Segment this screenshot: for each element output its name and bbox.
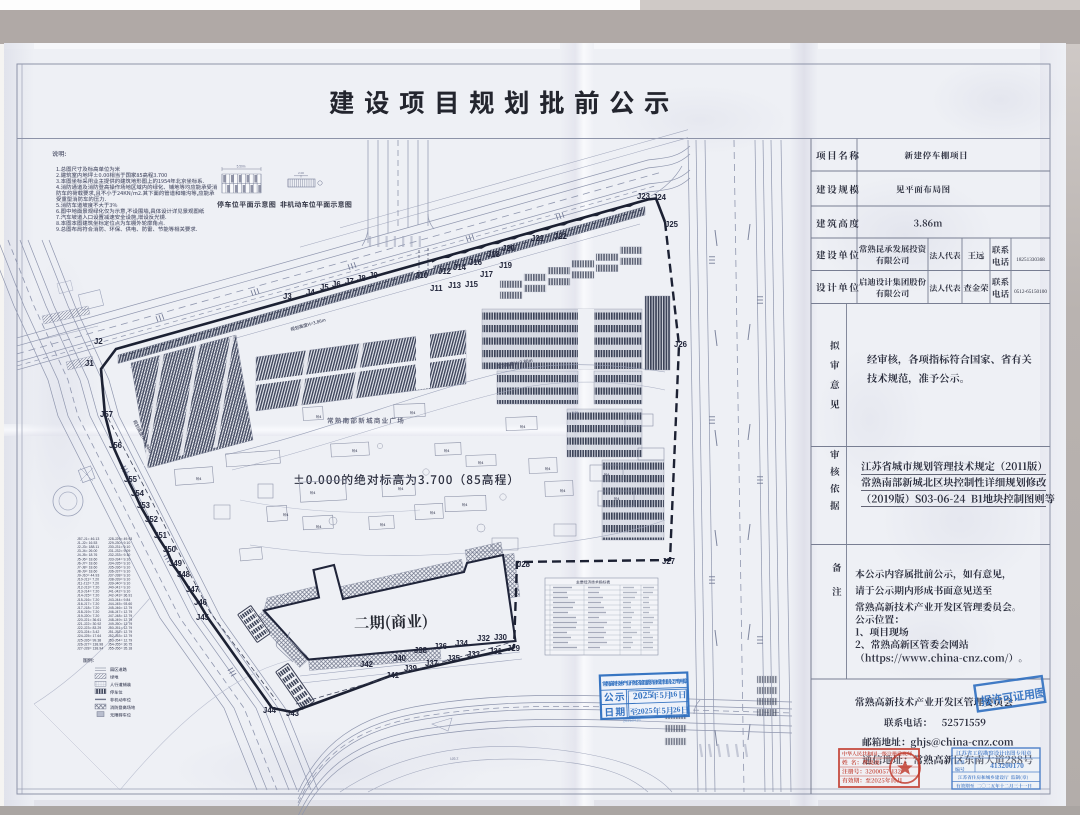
svg-text:J40: J40 xyxy=(393,654,407,663)
svg-text:J57: J57 xyxy=(100,410,113,419)
svg-text:J9: J9 xyxy=(369,271,378,280)
svg-text:5.50m: 5.50m xyxy=(237,165,246,169)
svg-text:J44: J44 xyxy=(263,706,277,715)
svg-text:105.2: 105.2 xyxy=(450,756,459,761)
svg-text:J23: J23 xyxy=(637,192,651,201)
svg-text:J51: J51 xyxy=(154,531,168,540)
svg-text:J29: J29 xyxy=(507,644,521,653)
svg-text:J45: J45 xyxy=(196,613,210,622)
svg-text:J56: J56 xyxy=(109,441,123,450)
svg-text:J19: J19 xyxy=(499,261,513,270)
svg-text:J55: J55 xyxy=(124,475,138,484)
svg-text:J47: J47 xyxy=(186,585,199,594)
svg-text:J49: J49 xyxy=(169,559,183,568)
svg-text:J46: J46 xyxy=(194,598,208,607)
svg-text:5.86: 5.86 xyxy=(572,411,578,415)
svg-text:J8: J8 xyxy=(357,274,366,283)
svg-text:J22: J22 xyxy=(554,232,568,241)
svg-text:J14: J14 xyxy=(453,263,467,272)
svg-text:J27: J27 xyxy=(662,557,675,566)
svg-text:J43: J43 xyxy=(286,709,300,718)
svg-text:J5: J5 xyxy=(320,283,329,292)
svg-text:J36: J36 xyxy=(434,642,448,651)
svg-text:26: 26 xyxy=(672,705,681,715)
svg-text:J7: J7 xyxy=(345,277,354,286)
svg-text:J25: J25 xyxy=(665,220,679,229)
svg-text:J42: J42 xyxy=(360,660,374,669)
svg-text:J10: J10 xyxy=(415,271,429,280)
svg-text:18251330368: 18251330368 xyxy=(1016,257,1045,263)
svg-text:J1: J1 xyxy=(85,359,94,368)
svg-text:5: 5 xyxy=(659,690,664,700)
svg-text:J37: J37 xyxy=(425,659,438,668)
svg-text:J32: J32 xyxy=(477,634,491,643)
svg-text:J4: J4 xyxy=(306,288,315,297)
svg-text:J21: J21 xyxy=(531,234,545,243)
svg-text:J28: J28 xyxy=(517,560,531,569)
svg-text:J15: J15 xyxy=(465,280,479,289)
svg-text:J2: J2 xyxy=(94,337,103,346)
svg-text:J55-J56= 35.18: J55-J56= 35.18 xyxy=(108,646,132,650)
svg-text:J39: J39 xyxy=(404,664,418,673)
svg-text:J24: J24 xyxy=(653,193,667,202)
svg-text:J41: J41 xyxy=(386,671,400,680)
svg-text:J11: J11 xyxy=(430,284,443,293)
svg-text:J27-J28= 138.94: J27-J28= 138.94 xyxy=(77,646,103,650)
svg-text:J54: J54 xyxy=(131,489,145,498)
svg-text:J6: J6 xyxy=(332,280,341,289)
svg-text:J17: J17 xyxy=(480,270,493,279)
svg-text:413200170: 413200170 xyxy=(990,761,1024,770)
svg-text:J26: J26 xyxy=(674,340,688,349)
svg-text:J31: J31 xyxy=(489,647,503,656)
svg-text:0512-65150100: 0512-65150100 xyxy=(1014,289,1047,295)
svg-text:J35: J35 xyxy=(447,654,461,663)
svg-text:J50: J50 xyxy=(163,545,177,554)
svg-text:J48: J48 xyxy=(177,570,191,579)
svg-text:J3: J3 xyxy=(283,292,292,301)
svg-text:J33: J33 xyxy=(467,650,481,659)
svg-text:J12: J12 xyxy=(438,267,452,276)
svg-text:J34: J34 xyxy=(455,639,469,648)
svg-text:J52: J52 xyxy=(145,515,159,524)
svg-text:5: 5 xyxy=(661,705,666,715)
svg-text:J16: J16 xyxy=(469,258,483,267)
svg-text:J38: J38 xyxy=(414,646,428,655)
svg-text:J20: J20 xyxy=(502,244,516,253)
svg-text:J13: J13 xyxy=(448,281,462,290)
svg-text:16: 16 xyxy=(669,689,678,699)
svg-text:J30: J30 xyxy=(494,633,508,642)
svg-text:J18: J18 xyxy=(487,250,501,259)
svg-text:2025: 2025 xyxy=(632,690,653,703)
svg-text:J53: J53 xyxy=(137,501,151,510)
svg-text:2.00: 2.00 xyxy=(298,171,304,175)
svg-text:2025: 2025 xyxy=(637,706,653,716)
